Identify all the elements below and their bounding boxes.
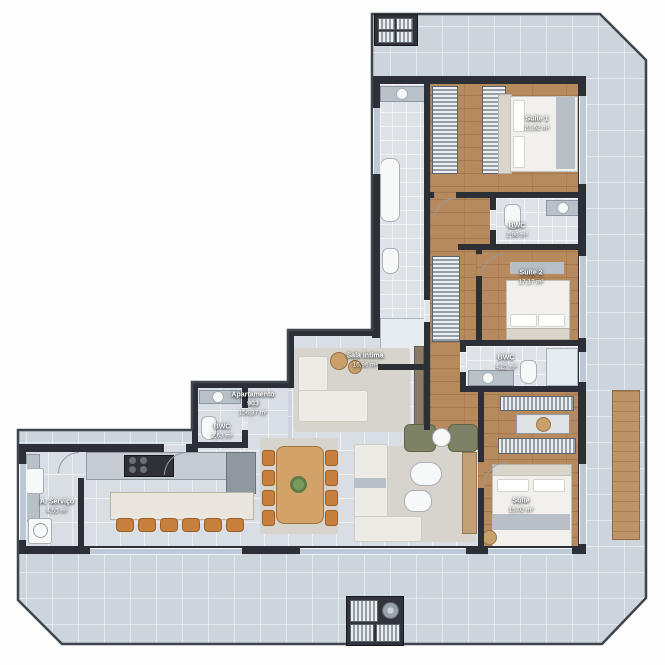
- floor-plan: Suíte 1 21,62 m² BWC 2,96 m² Suíte 2 17,…: [0, 0, 665, 665]
- wall: [288, 330, 378, 336]
- suite1-pillow: [513, 100, 525, 132]
- dining-chair: [325, 470, 338, 486]
- room-name: Suíte 1: [526, 116, 549, 123]
- label-bwc2: BWC 4,25 m²: [495, 355, 516, 372]
- condenser-coil: [350, 624, 374, 642]
- window: [300, 548, 466, 555]
- dining-chair: [325, 490, 338, 506]
- apartment-number: 903: [247, 400, 259, 407]
- room-name: Sala Íntima: [347, 353, 384, 360]
- bwc2-toilet: [520, 360, 537, 384]
- wall: [478, 488, 484, 550]
- condenser-coil: [396, 31, 413, 43]
- dining-chair: [262, 510, 275, 526]
- hall-wardrobe: [432, 256, 460, 342]
- bar-stool: [182, 518, 200, 532]
- label-apartment: Apartamento 903 156,37 m²: [231, 391, 274, 416]
- label-bwc1: BWC 2,96 m²: [506, 223, 527, 240]
- label-bwc3: BWC 2,63 m²: [211, 424, 232, 441]
- condenser-coil: [378, 18, 395, 30]
- window: [90, 548, 242, 555]
- burner: [140, 466, 147, 473]
- suite2-bed-headboard: [506, 328, 570, 340]
- label-suite1: Suíte 1 21,62 m²: [525, 116, 550, 133]
- wall: [196, 442, 246, 448]
- window: [373, 108, 381, 174]
- room-area: 4,25 m²: [495, 363, 516, 371]
- dining-chair: [262, 450, 275, 466]
- room-area: 16,96 m²: [347, 361, 384, 369]
- dining-chair: [325, 510, 338, 526]
- dining-chair: [325, 450, 338, 466]
- bar-stool: [226, 518, 244, 532]
- room-area: 17,17 m²: [519, 278, 544, 286]
- suite3-pouf: [482, 530, 497, 545]
- door-gap: [424, 300, 430, 322]
- window: [19, 464, 27, 540]
- bwc2-shower: [546, 348, 578, 386]
- suite3-wardrobe-top: [500, 396, 574, 411]
- servico-tank: [26, 468, 44, 494]
- label-suite3: Suíte 15,02 m²: [509, 498, 534, 515]
- room-name: BWC: [509, 223, 526, 230]
- bar-stool: [116, 518, 134, 532]
- terrace-planter: [612, 390, 640, 540]
- room-name: BWC: [214, 424, 231, 431]
- bar-stool: [160, 518, 178, 532]
- exhaust-fan-icon: [382, 602, 399, 619]
- room-area: 15,02 m²: [509, 506, 534, 514]
- wall: [18, 444, 164, 452]
- wall: [424, 370, 430, 430]
- suite2-pillow: [538, 314, 565, 327]
- condenser-coil: [378, 31, 395, 43]
- apartment-area: 156,37 m²: [231, 409, 274, 417]
- apartment-name: Apartamento: [231, 391, 274, 398]
- burner: [129, 457, 136, 464]
- coffee-table: [410, 462, 442, 486]
- suite2-pillow: [510, 314, 537, 327]
- side-table: [432, 428, 451, 447]
- suite1-wardrobe-left: [432, 86, 458, 174]
- room-name: BWC: [498, 355, 515, 362]
- door-gap: [460, 352, 466, 372]
- suite1-pillow: [513, 136, 525, 168]
- room-area: 2,63 m²: [211, 432, 232, 440]
- room-name: Suíte: [512, 498, 529, 505]
- room-name: A. Serviço: [40, 499, 74, 506]
- burner: [129, 466, 136, 473]
- bathroom1-bathtub: [380, 158, 400, 222]
- suite3-wardrobe-bottom: [498, 438, 576, 454]
- dining-chair: [262, 490, 275, 506]
- suite1-bed-throw: [556, 97, 575, 169]
- bar-stool: [138, 518, 156, 532]
- washer-drum: [33, 523, 48, 538]
- living-sideboard: [462, 452, 477, 534]
- bathroom1-toilet: [382, 248, 399, 274]
- suite3-pouf: [536, 417, 551, 432]
- refrigerator: [226, 452, 256, 494]
- door-gap: [164, 444, 186, 452]
- dining-chair: [262, 470, 275, 486]
- condenser-coil: [350, 600, 378, 622]
- bar-stool: [204, 518, 222, 532]
- window: [579, 352, 587, 382]
- bathroom1-basin: [396, 88, 408, 100]
- room-area: 4,55 m²: [40, 507, 74, 515]
- label-sala-intima: Sala Íntima 16,96 m²: [347, 353, 384, 370]
- bwc1-basin: [557, 202, 569, 214]
- bwc3-basin: [212, 391, 224, 403]
- wall: [192, 382, 198, 450]
- armchair: [448, 424, 478, 452]
- living-sofa-chaise: [354, 516, 422, 542]
- wall: [478, 392, 484, 462]
- window: [579, 96, 587, 184]
- room-name: Suíte 2: [520, 270, 543, 277]
- door-gap: [490, 210, 496, 230]
- bwc2-basin: [482, 372, 494, 384]
- coffee-table: [404, 490, 432, 512]
- wall: [78, 478, 84, 554]
- sala-intima-sofa: [298, 390, 368, 422]
- label-suite2: Suíte 2 17,17 m²: [519, 270, 544, 287]
- wall: [424, 76, 430, 370]
- room-area: 2,96 m²: [506, 231, 527, 239]
- wall: [460, 340, 586, 346]
- window: [579, 256, 587, 338]
- label-servico: A. Serviço 4,55 m²: [40, 499, 74, 516]
- kitchen-island: [110, 492, 254, 520]
- condenser-coil: [396, 18, 413, 30]
- condenser-coil: [376, 624, 400, 642]
- wall: [288, 330, 294, 388]
- table-plant: [290, 476, 307, 493]
- window: [579, 464, 587, 544]
- wall: [378, 364, 426, 370]
- suite3-pillow: [533, 479, 565, 492]
- sala-coffee-table: [330, 352, 348, 370]
- suite3-bed-throw: [492, 514, 570, 530]
- window: [488, 548, 572, 555]
- wall: [372, 76, 586, 84]
- room-area: 21,62 m²: [525, 124, 550, 132]
- sofa-throw: [354, 478, 386, 488]
- sala-tv-rack: [414, 346, 424, 426]
- burner: [140, 457, 147, 464]
